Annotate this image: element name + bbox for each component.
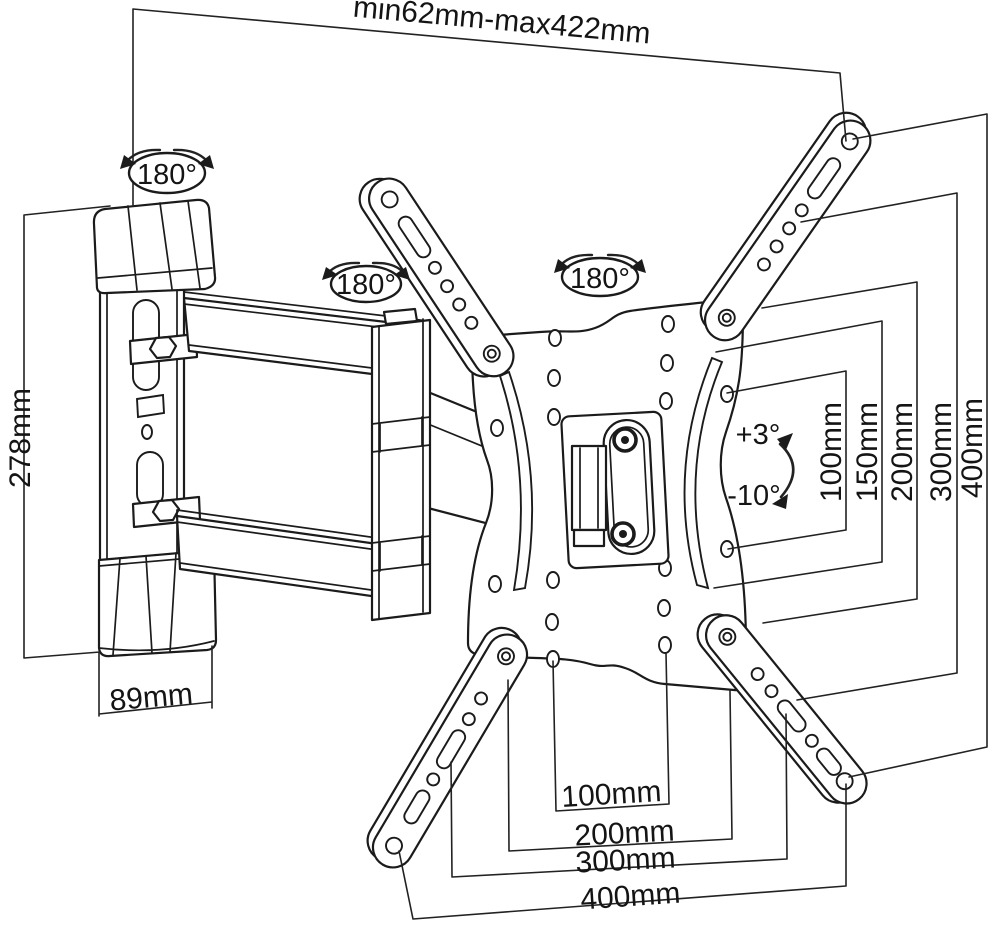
rotation-badge-2-label: 180°: [336, 269, 396, 301]
dim-vesa-v-150-label: 150mm: [851, 402, 884, 502]
dim-vesa-v-300-label: 300mm: [925, 402, 958, 502]
diagram-svg: +3° -10° 180° 180° 180° min62mm-max422mm…: [0, 0, 990, 929]
tilt-down-label: -10°: [727, 480, 781, 512]
rotation-badge-1-label: 180°: [137, 159, 197, 191]
rotation-badge-1: 180°: [120, 150, 214, 193]
rotation-badge-3: 180°: [554, 255, 646, 296]
articulating-arm: [177, 292, 430, 620]
dim-vesa-v-100-label: 100mm: [815, 402, 848, 502]
dim-vesa-h-100-label: 100mm: [560, 775, 662, 814]
extension-arm-top-right: [691, 105, 881, 348]
wall-bracket: [94, 200, 216, 656]
dim-vesa-h-300-label: 300mm: [575, 841, 677, 879]
tilt-annotation: +3° -10°: [727, 419, 793, 512]
pivot-bracket: [561, 411, 669, 568]
wall-mount-diagram: +3° -10° 180° 180° 180° min62mm-max422mm…: [0, 0, 990, 929]
rotation-badge-2: 180°: [322, 263, 410, 302]
dim-bracket-width-label: 89mm: [108, 677, 194, 717]
dim-bracket-height-label: 278mm: [4, 388, 37, 488]
rotation-badge-3-label: 180°: [570, 263, 630, 295]
dim-vesa-h-400-label: 400mm: [579, 877, 681, 917]
dim-vesa-v-400-label: 400mm: [956, 398, 989, 498]
extension-arm-bottom-right: [690, 602, 875, 815]
dim-vesa-v-200-label: 200mm: [886, 402, 919, 502]
tilt-up-label: +3°: [736, 419, 781, 451]
